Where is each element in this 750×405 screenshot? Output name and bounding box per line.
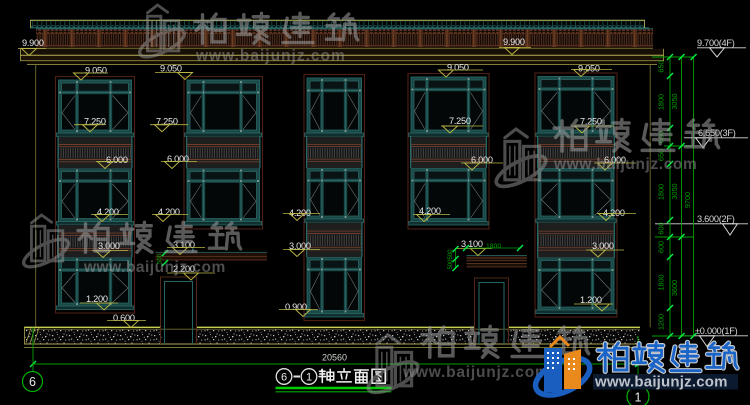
- svg-text:1800: 1800: [486, 243, 501, 250]
- svg-text:3.100: 3.100: [461, 239, 483, 249]
- svg-text:9.900: 9.900: [22, 38, 44, 48]
- svg-text:6: 6: [281, 372, 287, 384]
- svg-text:1200: 1200: [657, 314, 666, 330]
- svg-text:1: 1: [306, 372, 312, 384]
- svg-text:3050: 3050: [670, 183, 679, 199]
- svg-text:1.200: 1.200: [580, 295, 602, 305]
- svg-text:1800: 1800: [657, 274, 666, 290]
- svg-text:1.200: 1.200: [86, 294, 108, 304]
- svg-text:www.baijunjz.com: www.baijunjz.com: [553, 156, 697, 173]
- svg-text:www.baijunjz.com: www.baijunjz.com: [83, 259, 226, 276]
- svg-text:www.baijunjz.com: www.baijunjz.com: [195, 48, 346, 65]
- svg-text:4.200: 4.200: [603, 208, 625, 218]
- svg-text:7.250: 7.250: [449, 116, 471, 126]
- svg-text:9.700(4F): 9.700(4F): [697, 38, 735, 48]
- svg-text:3050: 3050: [670, 93, 679, 109]
- svg-text:1800: 1800: [657, 184, 666, 200]
- svg-text:www.baijunjz.com: www.baijunjz.com: [594, 374, 728, 391]
- svg-text:3600: 3600: [670, 280, 679, 296]
- svg-text:650: 650: [657, 60, 666, 72]
- svg-text:3.000: 3.000: [592, 241, 614, 251]
- svg-text:6.000: 6.000: [106, 155, 128, 165]
- svg-text:500: 500: [448, 249, 454, 260]
- svg-text:500: 500: [448, 259, 454, 270]
- svg-text:600: 600: [657, 222, 666, 234]
- svg-text:www.baijunjz.com: www.baijunjz.com: [402, 364, 550, 381]
- svg-text:9700: 9700: [683, 192, 692, 208]
- svg-text:9.050: 9.050: [160, 63, 182, 73]
- svg-text:±0.000(1F): ±0.000(1F): [695, 326, 738, 336]
- svg-text:20560: 20560: [322, 353, 347, 363]
- svg-text:3.600(2F): 3.600(2F): [697, 214, 735, 224]
- svg-text:600: 600: [657, 241, 666, 253]
- svg-text:6: 6: [29, 375, 36, 389]
- svg-text:9.050: 9.050: [447, 62, 469, 72]
- svg-text:9.900: 9.900: [503, 37, 525, 47]
- svg-text:9.050: 9.050: [578, 63, 600, 73]
- svg-text:1800: 1800: [657, 94, 666, 110]
- svg-text:1: 1: [635, 391, 642, 405]
